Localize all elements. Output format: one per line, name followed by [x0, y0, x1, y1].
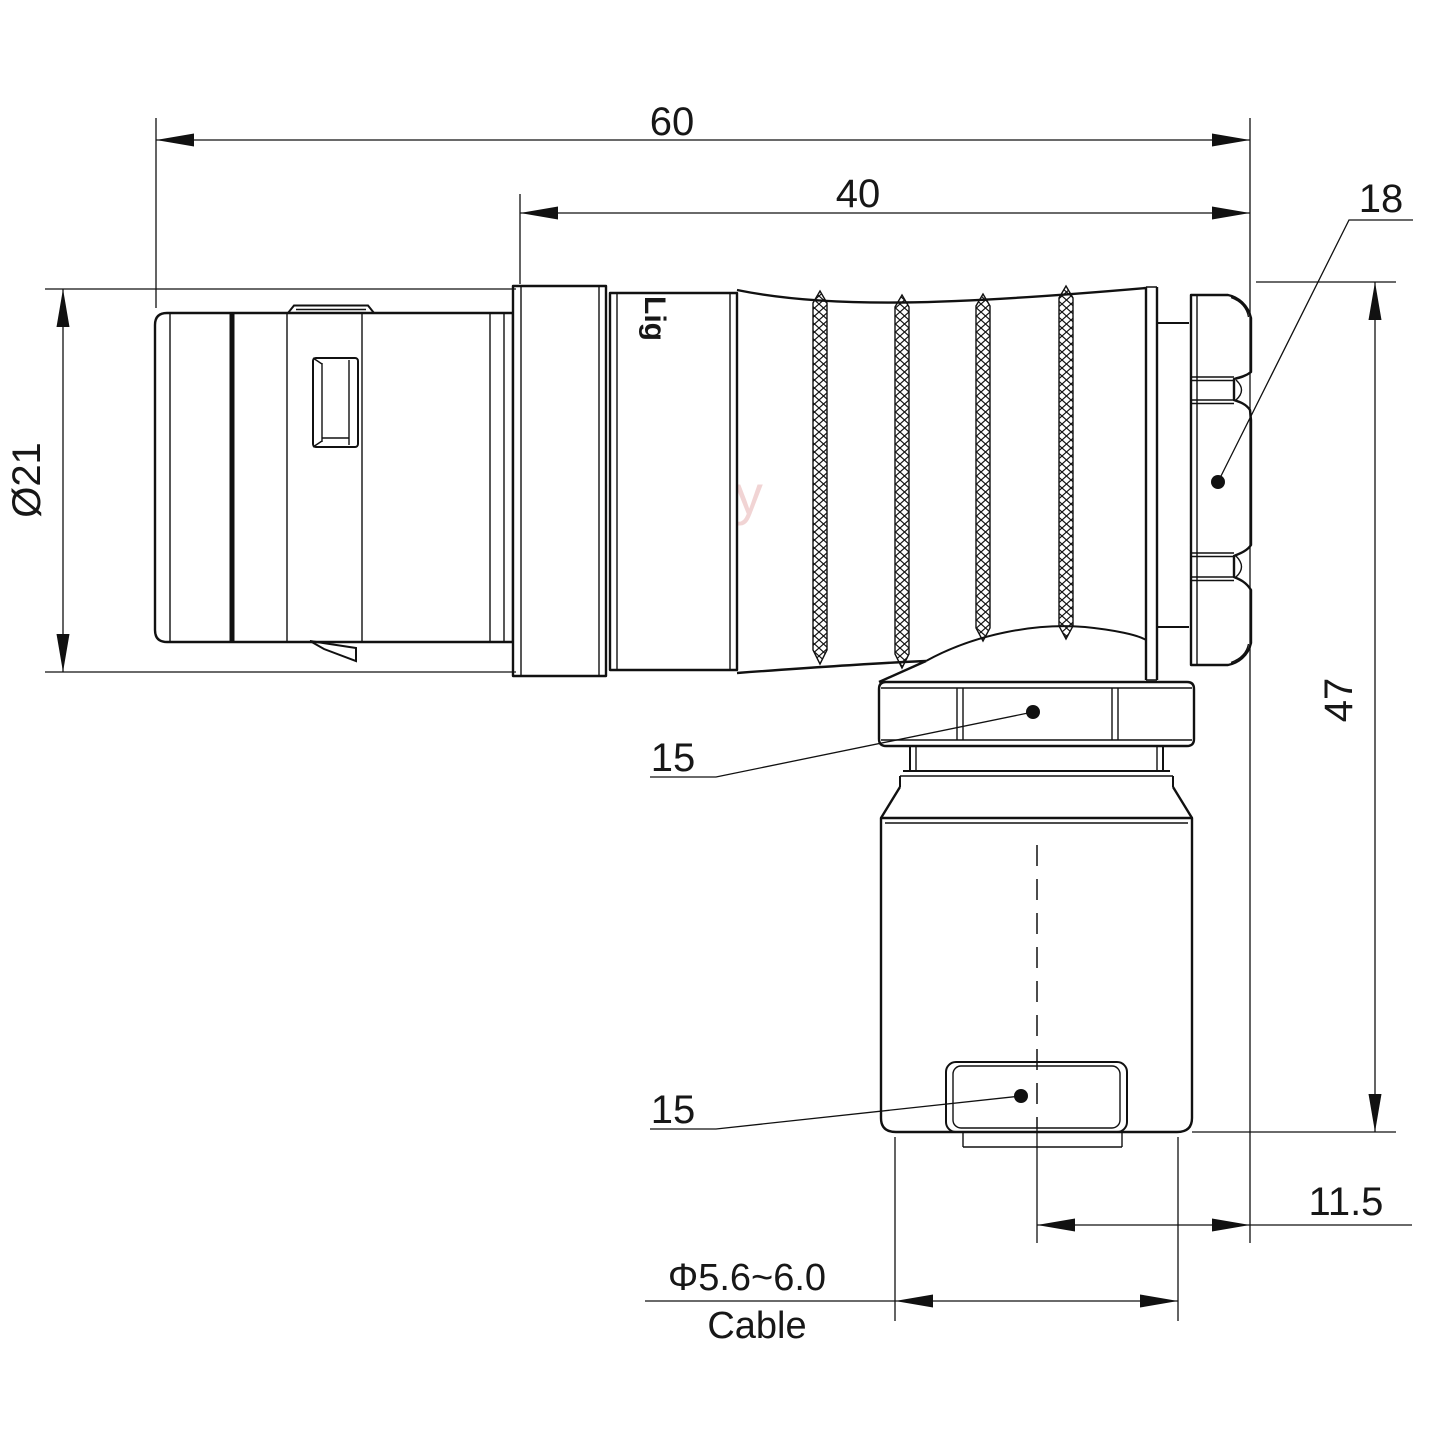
dim-axis-offset-label: 11.5 [1309, 1180, 1384, 1224]
rear-shell [155, 306, 513, 662]
dim-body-diameter: Ø21 [5, 289, 70, 672]
connector-right-angle-drawing: Lightany Lig [0, 0, 1440, 1440]
dimension-lines: 60 40 Ø21 47 11.5 [5, 100, 1413, 1347]
front-face-plate [1146, 287, 1157, 680]
rear-collar [1157, 323, 1189, 627]
dim-front-length: 40 [520, 172, 1250, 220]
leader-coupling-nut-label: 15 [651, 736, 696, 780]
leader-rear-nut-label: 18 [1359, 177, 1404, 221]
body-print-text: Lig [638, 296, 671, 341]
knurl-strip [813, 286, 1073, 668]
dim-body-diameter-label: Ø21 [5, 442, 49, 518]
knurled-taper-section [737, 286, 1146, 673]
cable-boot [881, 818, 1192, 1147]
dim-cable-diameter: Φ5.6~6.0 Cable [645, 1257, 1178, 1347]
dim-overall-length-label: 60 [650, 100, 695, 144]
gland-neck [881, 746, 1192, 818]
mid-ring-large [513, 286, 606, 676]
elbow-housing [879, 626, 1146, 682]
shell-bottom-latch [310, 641, 356, 661]
dim-total-height-label: 47 [1317, 678, 1361, 723]
dim-axis-offset: 11.5 [1037, 1180, 1412, 1232]
dim-overall-length: 60 [156, 100, 1250, 147]
leader-clamp-window-label: 15 [651, 1088, 696, 1132]
dim-total-height: 47 [1317, 282, 1382, 1132]
dim-front-length-label: 40 [836, 172, 881, 216]
mid-ring-printed: Lig [610, 293, 737, 670]
cable-label: Cable [707, 1305, 806, 1347]
dim-cable-diameter-label: Φ5.6~6.0 [668, 1257, 826, 1299]
